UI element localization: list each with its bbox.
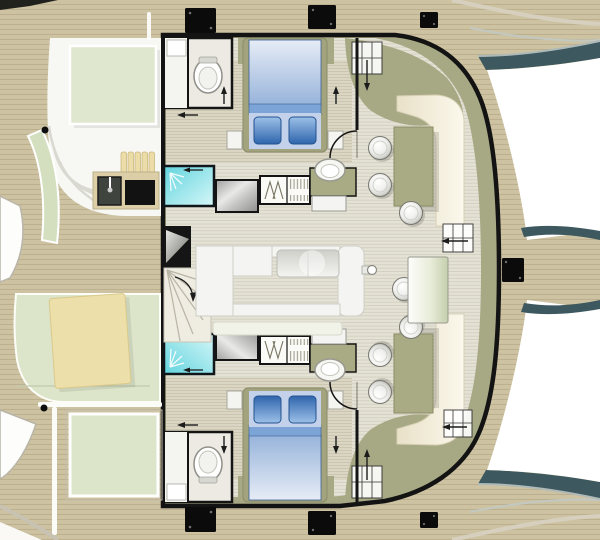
winch-dot xyxy=(42,127,49,134)
catamaran-deck-plan xyxy=(0,0,600,540)
rigging-line xyxy=(147,12,151,40)
deck-plan-drawing xyxy=(0,0,600,540)
galley-grill-icon xyxy=(125,180,155,205)
foredeck-hatch xyxy=(502,258,524,282)
table-knob xyxy=(368,266,377,275)
rail-vertical xyxy=(52,407,57,535)
lounge-table xyxy=(49,293,135,392)
cockpit-table xyxy=(70,46,156,124)
sideboard xyxy=(408,257,448,323)
dining-table xyxy=(394,127,439,212)
cockpit-steps-forward xyxy=(441,224,473,252)
double-bed xyxy=(227,38,343,152)
sunpad xyxy=(70,414,158,496)
bathroom xyxy=(165,38,232,118)
dresser-mirror xyxy=(216,180,258,212)
winch-dot xyxy=(41,405,48,412)
outdoor-galley xyxy=(93,172,159,209)
shower xyxy=(164,166,214,206)
settee-backrest xyxy=(213,322,342,335)
rail-horizontal xyxy=(38,402,162,407)
cockpit-steps-aft xyxy=(442,410,472,437)
cabin-and-dining xyxy=(164,38,464,227)
wardrobe xyxy=(260,176,310,204)
